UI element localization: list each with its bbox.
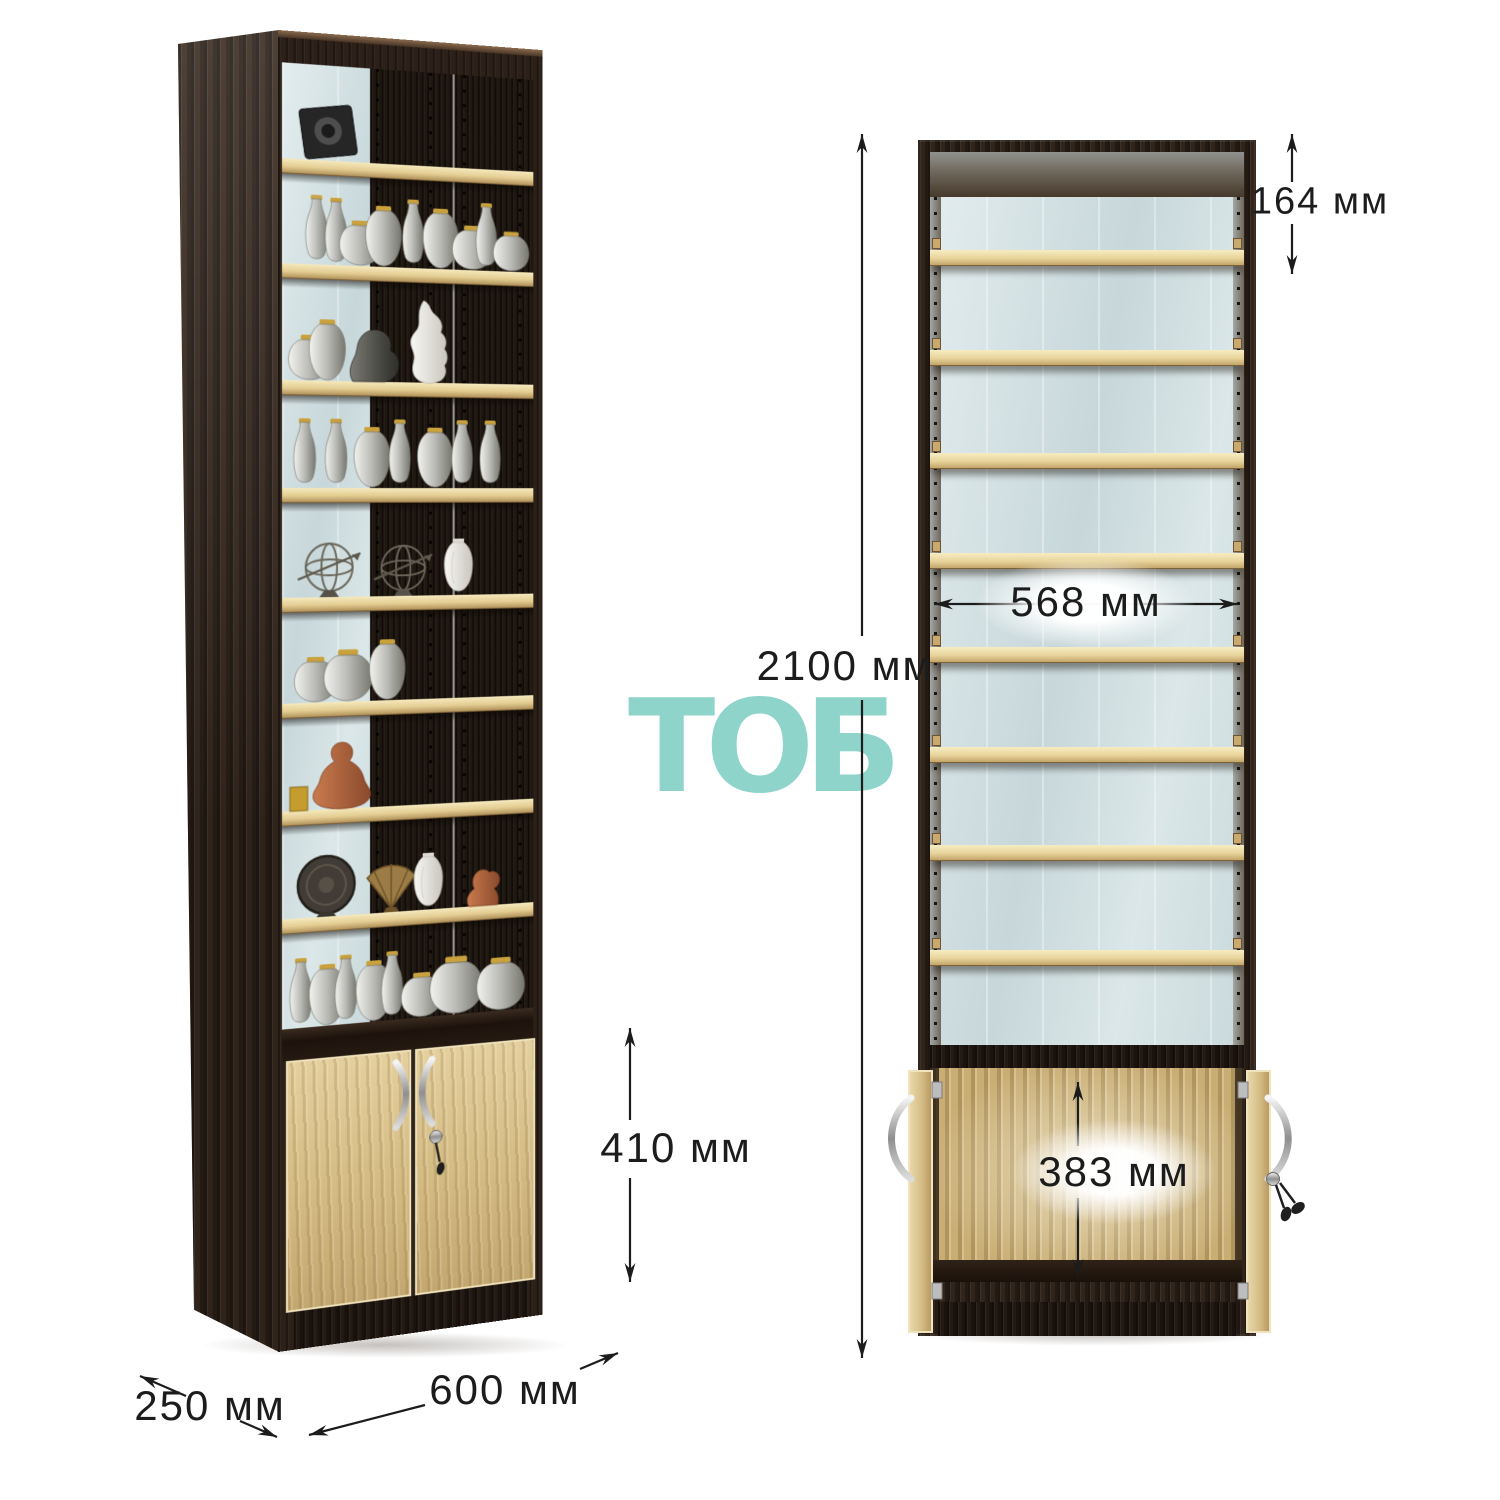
- silver-jug: [354, 427, 390, 487]
- decor-items-layer: [278, 30, 542, 1352]
- silver-decanter: [452, 420, 473, 482]
- silver-decanter: [480, 420, 500, 482]
- white-vase: [444, 538, 472, 591]
- shelf: [930, 747, 1244, 763]
- stone-bust: [350, 329, 399, 382]
- open-door-right: [1246, 1070, 1271, 1333]
- shelf: [930, 950, 1244, 966]
- dim-label-lower-inner-height: 383 мм: [1038, 1148, 1190, 1196]
- silver-decanter: [389, 419, 410, 482]
- showcase-perspective-view: [178, 30, 556, 1358]
- brand-watermark: ТОБ: [628, 684, 892, 812]
- silver-decanter: [325, 419, 347, 483]
- white-ornate-sculpture: [411, 300, 447, 383]
- shelf: [930, 845, 1244, 861]
- dim-label-depth: 250 мм: [134, 1382, 286, 1430]
- dim-line-600-left: [309, 1405, 425, 1435]
- hanging-key: [436, 1142, 440, 1162]
- silver-decanter: [294, 418, 316, 482]
- pewter-jug: [366, 205, 402, 266]
- gold-fan: [367, 862, 415, 913]
- open-door-left: [908, 1070, 933, 1333]
- compartment-side: [932, 1068, 939, 1282]
- white-vase: [414, 852, 442, 907]
- silver-pot: [430, 954, 482, 1015]
- shelf: [930, 453, 1244, 469]
- silver-pot: [493, 231, 529, 271]
- silver-jug: [370, 639, 405, 700]
- silver-decanter: [290, 957, 312, 1023]
- dim-label-top-compartment: 164 мм: [1251, 181, 1389, 224]
- photo-frame: [299, 102, 358, 162]
- silver-pot: [477, 955, 525, 1011]
- dark-plate: [298, 854, 355, 918]
- wire-sphere-with-arrow: [374, 545, 432, 596]
- buddha-statue: [313, 741, 370, 810]
- inner-side-right: [1233, 197, 1244, 1045]
- dim-label-overall-width: 600 мм: [429, 1366, 581, 1414]
- top-panel-underside: [930, 152, 1244, 197]
- shelf-pin-holes: [1237, 197, 1240, 1045]
- kneeling-figurine: [467, 869, 499, 907]
- key-lock: [430, 1130, 442, 1144]
- shelf-pin-holes: [934, 197, 937, 1045]
- open-door-handle-right: [1268, 1098, 1288, 1179]
- silver-decanter: [403, 199, 424, 263]
- silver-pot: [324, 649, 372, 702]
- door-handle-right: [422, 1059, 432, 1124]
- dim-line-600-right: [580, 1353, 618, 1369]
- silver-decanter: [382, 950, 403, 1015]
- wire-sphere-with-arrow: [298, 543, 361, 597]
- silver-decanter: [335, 954, 356, 1019]
- door-handle-left: [396, 1062, 406, 1128]
- dim-label-overall-height: 2100 мм: [757, 642, 934, 690]
- cabinet-side-panel: [178, 30, 279, 1352]
- glass-decanter: [306, 194, 328, 259]
- silver-jug: [309, 319, 345, 380]
- cabinet-front-face: [278, 30, 542, 1352]
- dim-label-inner-width: 568 мм: [1010, 578, 1162, 626]
- inner-side-left: [930, 197, 941, 1045]
- silver-jug: [417, 428, 452, 488]
- hanging-keys: [1276, 1183, 1306, 1222]
- dim-label-lower-cabinet-height: 410 мм: [600, 1124, 752, 1172]
- shelf: [930, 250, 1244, 266]
- furniture-dimension-render: ТОБ: [0, 0, 1500, 1500]
- gold-box: [290, 787, 308, 812]
- plinth: [938, 1302, 1236, 1336]
- compartment-floor: [932, 1260, 1242, 1282]
- shelf: [930, 350, 1244, 366]
- hanging-key-bow: [435, 1162, 445, 1176]
- silver-jug: [423, 208, 458, 269]
- lower-cabinet-top: [930, 1045, 1244, 1068]
